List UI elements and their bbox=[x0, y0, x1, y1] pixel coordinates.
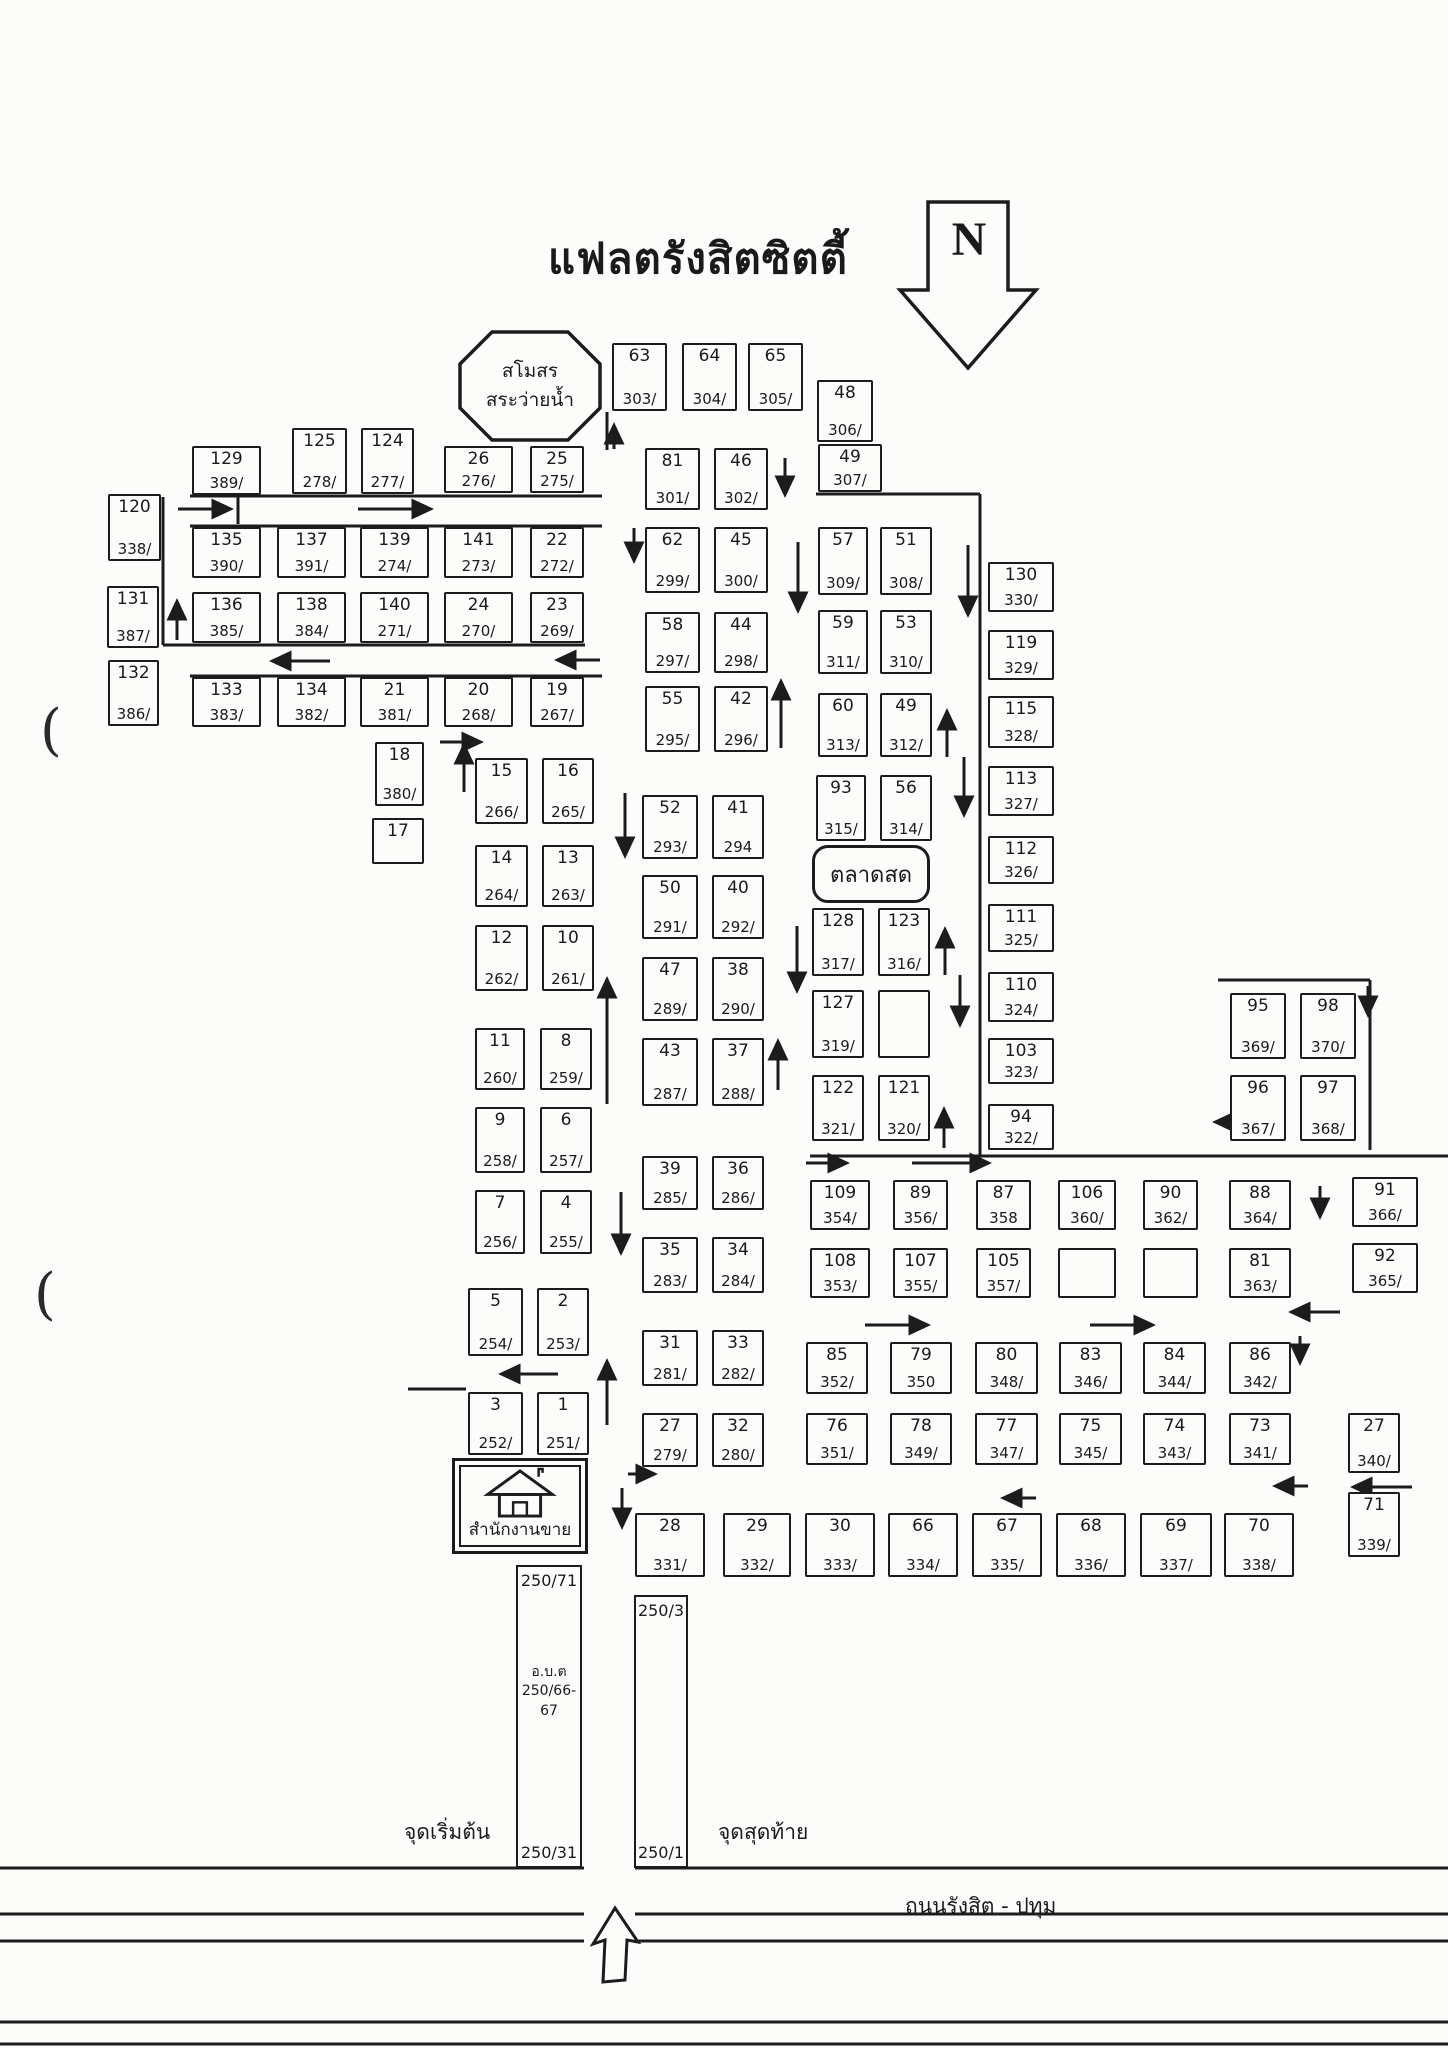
block-unit-number: 60 bbox=[832, 695, 854, 716]
block-address-number: 269/ bbox=[540, 623, 574, 642]
block-unit-number: 106 bbox=[1071, 1182, 1103, 1203]
block-46: 46302/ bbox=[714, 448, 768, 510]
block-address-number: 353/ bbox=[823, 1278, 857, 1297]
block-unit-number: 38 bbox=[727, 959, 749, 980]
block-38: 38290/ bbox=[712, 957, 764, 1021]
block-address-number: 389/ bbox=[210, 475, 244, 494]
block-unit-number: 80 bbox=[996, 1344, 1018, 1365]
block-address-number: 332/ bbox=[740, 1557, 774, 1576]
block-address-number: 362/ bbox=[1154, 1210, 1188, 1229]
block-address-number: 313/ bbox=[826, 737, 860, 756]
block-unit-number: 139 bbox=[378, 529, 410, 550]
block-unit-number: 91 bbox=[1374, 1179, 1396, 1200]
block-94: 94322/ bbox=[988, 1104, 1054, 1150]
block-129: 129389/ bbox=[192, 446, 261, 495]
block-unit-number: 31 bbox=[659, 1332, 681, 1353]
block-address-number: 347/ bbox=[990, 1445, 1024, 1464]
block-49: 49312/ bbox=[880, 693, 932, 757]
block-unit-number: 46 bbox=[730, 450, 752, 471]
block-unit-number: 136 bbox=[210, 594, 242, 615]
block-87: 87358 bbox=[976, 1180, 1031, 1230]
block-106: 106360/ bbox=[1058, 1180, 1116, 1230]
block-unit-number: 94 bbox=[1010, 1106, 1032, 1127]
block-unit-number: 128 bbox=[822, 910, 854, 931]
block-2: 2253/ bbox=[537, 1288, 589, 1356]
block-63: 63303/ bbox=[612, 343, 667, 411]
block-unit-number: 30 bbox=[829, 1515, 851, 1536]
block-address-number: 308/ bbox=[889, 575, 923, 594]
road-name-label: ถนนรังสิต - ปทุม bbox=[905, 1890, 1056, 1923]
block-address-number: 328/ bbox=[1004, 728, 1038, 747]
block-address-number: 366/ bbox=[1368, 1207, 1402, 1226]
block-address-number: 367/ bbox=[1241, 1121, 1275, 1140]
block-119: 119329/ bbox=[988, 630, 1054, 680]
block-unit-number: 84 bbox=[1164, 1344, 1186, 1365]
block-21: 21381/ bbox=[360, 677, 429, 727]
block-unit-number: 134 bbox=[295, 679, 327, 700]
block-unit-number: 48 bbox=[834, 382, 856, 403]
entrance-arrow bbox=[593, 1908, 638, 1982]
block-67: 67335/ bbox=[972, 1513, 1042, 1577]
block-unit-number: 20 bbox=[468, 679, 490, 700]
block-139: 139274/ bbox=[360, 527, 429, 578]
block-address-number: 307/ bbox=[833, 472, 867, 491]
block-address-number: 276/ bbox=[462, 473, 496, 492]
block-12: 12262/ bbox=[475, 925, 528, 991]
block-131: 131387/ bbox=[107, 586, 159, 648]
block-address-number: 293/ bbox=[653, 839, 687, 858]
block-76: 76351/ bbox=[806, 1413, 868, 1465]
block-unit-number: 1 bbox=[558, 1394, 569, 1415]
block-22: 22272/ bbox=[530, 527, 584, 578]
block-address-number: 280/ bbox=[721, 1447, 755, 1466]
block-unit-number: 74 bbox=[1164, 1415, 1186, 1436]
block-address-number: 268/ bbox=[462, 707, 496, 726]
block-address-number: 264/ bbox=[485, 887, 519, 906]
block-unit-number: 122 bbox=[822, 1077, 854, 1098]
block-unit-number: 18 bbox=[389, 744, 411, 765]
scan-artifact-mark: ( bbox=[40, 698, 62, 763]
block-unit-number: 65 bbox=[765, 345, 787, 366]
block-96: 96367/ bbox=[1230, 1075, 1286, 1141]
block-unit-number: 79 bbox=[910, 1344, 932, 1365]
block-unit-number: 58 bbox=[662, 614, 684, 635]
block-97: 97368/ bbox=[1300, 1075, 1356, 1141]
block-address-number: 383/ bbox=[210, 707, 244, 726]
block-address-number: 304/ bbox=[693, 391, 727, 410]
block-1: 1251/ bbox=[537, 1392, 589, 1455]
block-unit-number: 86 bbox=[1249, 1344, 1271, 1365]
block-address-number: 301/ bbox=[656, 490, 690, 509]
block-80: 80348/ bbox=[975, 1342, 1038, 1394]
block-unit-number: 8 bbox=[561, 1030, 572, 1051]
block-unit-number: 110 bbox=[1005, 974, 1037, 995]
block-4: 4255/ bbox=[540, 1190, 592, 1254]
block-address-number: 271/ bbox=[378, 623, 412, 642]
block-108: 108353/ bbox=[810, 1248, 870, 1298]
block-address-number: 339/ bbox=[1357, 1537, 1391, 1556]
block-address-number: 356/ bbox=[904, 1210, 938, 1229]
block-78: 78349/ bbox=[890, 1413, 952, 1465]
block-address-number: 290/ bbox=[721, 1001, 755, 1020]
block-address-number: 278/ bbox=[303, 474, 337, 493]
block-unit-number: 19 bbox=[546, 679, 568, 700]
block-unit-number: 68 bbox=[1080, 1515, 1102, 1536]
block-122: 122321/ bbox=[812, 1075, 864, 1141]
block-unit-number: 55 bbox=[662, 688, 684, 709]
block-31: 31281/ bbox=[642, 1330, 698, 1386]
block-address-number: 384/ bbox=[295, 623, 329, 642]
block-8: 8259/ bbox=[540, 1028, 592, 1090]
block-unit-number: 108 bbox=[824, 1250, 856, 1271]
block-unit-number: 59 bbox=[832, 612, 854, 633]
block-52: 52293/ bbox=[642, 795, 698, 859]
block-89: 89356/ bbox=[893, 1180, 948, 1230]
block-address-number: 387/ bbox=[116, 628, 150, 647]
block-address-number: 337/ bbox=[1159, 1557, 1193, 1576]
block-47: 47289/ bbox=[642, 957, 698, 1021]
block-address-number: 385/ bbox=[210, 623, 244, 642]
block-address-number: 316/ bbox=[887, 956, 921, 975]
block-unit-number: 96 bbox=[1247, 1077, 1269, 1098]
block-5: 5254/ bbox=[468, 1288, 523, 1356]
block-unit-number: 14 bbox=[491, 847, 513, 868]
block-unit-number: 2 bbox=[558, 1290, 569, 1311]
block-unit-number: 81 bbox=[1249, 1250, 1271, 1271]
block-unit-number: 95 bbox=[1247, 995, 1269, 1016]
block-address-number: 297/ bbox=[656, 653, 690, 672]
block-unit-number: 90 bbox=[1160, 1182, 1182, 1203]
block-81: 81363/ bbox=[1229, 1248, 1291, 1298]
block-121: 121320/ bbox=[878, 1075, 930, 1141]
block-address-number: 310/ bbox=[889, 654, 923, 673]
sales-office-label: สำนักงานขาย bbox=[469, 1516, 571, 1545]
block-address-number: 323/ bbox=[1004, 1064, 1038, 1083]
block-127: 127319/ bbox=[812, 990, 864, 1058]
block-68: 68336/ bbox=[1056, 1513, 1126, 1577]
block-address-number: 266/ bbox=[485, 804, 519, 823]
block-unit-number: 120 bbox=[118, 496, 150, 517]
block-unit-number: 123 bbox=[888, 910, 920, 931]
block-unit-number: 131 bbox=[117, 588, 149, 609]
block-address-number: 351/ bbox=[820, 1445, 854, 1464]
block-address-number: 368/ bbox=[1311, 1121, 1345, 1140]
block-address-number: 259/ bbox=[549, 1070, 583, 1089]
block-address-number: 327/ bbox=[1004, 796, 1038, 815]
block-51: 51308/ bbox=[880, 527, 932, 595]
block-30: 30333/ bbox=[805, 1513, 875, 1577]
block-unit-number: 35 bbox=[659, 1239, 681, 1260]
block-unit-number: 77 bbox=[996, 1415, 1018, 1436]
block-123: 123316/ bbox=[878, 908, 930, 976]
block-unit-number: 42 bbox=[730, 688, 752, 709]
block-70: 70338/ bbox=[1224, 1513, 1294, 1577]
block-unit-number: 50 bbox=[659, 877, 681, 898]
block-unit-number: 4 bbox=[561, 1192, 572, 1213]
block-unit-number: 52 bbox=[659, 797, 681, 818]
block-address-number: 289/ bbox=[653, 1001, 687, 1020]
block-unit-number: 78 bbox=[910, 1415, 932, 1436]
block-address-number: 295/ bbox=[656, 732, 690, 751]
block-unit-number: 89 bbox=[910, 1182, 932, 1203]
block-103: 103323/ bbox=[988, 1038, 1054, 1084]
block-unit-number: 27 bbox=[1363, 1415, 1385, 1436]
block-address-number: 267/ bbox=[540, 707, 574, 726]
clubhouse-label: สโมสร สระว่ายน้ำ bbox=[458, 330, 602, 442]
block-unit-number: 64 bbox=[699, 345, 721, 366]
lot-strip-left: 250/71 อ.บ.ต 250/66-67 250/31 bbox=[516, 1565, 582, 1868]
block-11: 11260/ bbox=[475, 1028, 525, 1090]
block-79: 79350 bbox=[890, 1342, 952, 1394]
block-address-number: 312/ bbox=[889, 737, 923, 756]
north-label: N bbox=[940, 212, 998, 267]
block-empty bbox=[878, 990, 930, 1058]
block-140: 140271/ bbox=[360, 592, 429, 643]
block-unit-number: 93 bbox=[830, 777, 852, 798]
block-unit-number: 39 bbox=[659, 1158, 681, 1179]
block-address-number: 285/ bbox=[653, 1190, 687, 1209]
block-23: 23269/ bbox=[530, 592, 584, 643]
block-137: 137391/ bbox=[277, 527, 346, 578]
block-address-number: 300/ bbox=[724, 573, 758, 592]
block-address-number: 255/ bbox=[549, 1234, 583, 1253]
block-unit-number: 137 bbox=[295, 529, 327, 550]
block-unit-number: 135 bbox=[210, 529, 242, 550]
block-unit-number: 12 bbox=[491, 927, 513, 948]
block-112: 112326/ bbox=[988, 836, 1054, 884]
block-77: 77347/ bbox=[975, 1413, 1038, 1465]
block-unit-number: 5 bbox=[490, 1290, 501, 1311]
block-address-number: 333/ bbox=[823, 1557, 857, 1576]
block-unit-number: 37 bbox=[727, 1040, 749, 1061]
block-address-number: 360/ bbox=[1070, 1210, 1104, 1229]
block-address-number: 363/ bbox=[1243, 1278, 1277, 1297]
block-address-number: 370/ bbox=[1311, 1039, 1345, 1058]
block-111: 111325/ bbox=[988, 904, 1054, 952]
block-unit-number: 41 bbox=[727, 797, 749, 818]
block-address-number: 346/ bbox=[1074, 1374, 1108, 1393]
block-address-number: 303/ bbox=[623, 391, 657, 410]
market-label: ตลาดสด bbox=[830, 857, 912, 892]
block-address-number: 306/ bbox=[828, 422, 862, 441]
block-unit-number: 26 bbox=[468, 448, 490, 469]
block-address-number: 324/ bbox=[1004, 1002, 1038, 1021]
block-56: 56314/ bbox=[880, 775, 932, 841]
block-address-number: 315/ bbox=[824, 821, 858, 840]
block-unit-number: 63 bbox=[629, 345, 651, 366]
block-69: 69337/ bbox=[1140, 1513, 1212, 1577]
block-address-number: 341/ bbox=[1243, 1445, 1277, 1464]
block-unit-number: 45 bbox=[730, 529, 752, 550]
block-unit-number: 28 bbox=[659, 1515, 681, 1536]
block-unit-number: 47 bbox=[659, 959, 681, 980]
block-unit-number: 36 bbox=[727, 1158, 749, 1179]
block-53: 53310/ bbox=[880, 610, 932, 674]
block-unit-number: 10 bbox=[557, 927, 579, 948]
block-88: 88364/ bbox=[1229, 1180, 1291, 1230]
block-92: 92365/ bbox=[1352, 1243, 1418, 1293]
block-105: 105357/ bbox=[976, 1248, 1031, 1298]
strip-right-top-label: 250/3 bbox=[636, 1601, 686, 1620]
block-132: 132386/ bbox=[108, 660, 159, 726]
block-empty bbox=[1143, 1248, 1198, 1298]
block-address-number: 251/ bbox=[546, 1435, 580, 1454]
block-address-number: 391/ bbox=[295, 558, 329, 577]
block-19: 19267/ bbox=[530, 677, 584, 727]
block-address-number: 279/ bbox=[653, 1447, 687, 1466]
block-address-number: 287/ bbox=[653, 1086, 687, 1105]
block-86: 86342/ bbox=[1229, 1342, 1291, 1394]
block-address-number: 380/ bbox=[383, 786, 417, 805]
site-map: แฟลตรังสิตซิตตี้ N สโมสร สระว่ายน้ำ ตลาด… bbox=[0, 0, 1448, 2048]
block-62: 62299/ bbox=[645, 527, 700, 593]
block-134: 134382/ bbox=[277, 677, 346, 727]
strip-left-mid-label: อ.บ.ต 250/66-67 bbox=[518, 1663, 580, 1722]
block-32: 32280/ bbox=[712, 1413, 764, 1467]
block-98: 98370/ bbox=[1300, 993, 1356, 1059]
block-unit-number: 53 bbox=[895, 612, 917, 633]
house-icon bbox=[477, 1467, 563, 1518]
block-57: 57309/ bbox=[818, 527, 868, 595]
block-address-number: 270/ bbox=[462, 623, 496, 642]
block-45: 45300/ bbox=[714, 527, 768, 593]
block-37: 37288/ bbox=[712, 1038, 764, 1106]
block-71: 71339/ bbox=[1348, 1492, 1400, 1557]
block-unit-number: 98 bbox=[1317, 995, 1339, 1016]
sales-office: สำนักงานขาย bbox=[452, 1458, 588, 1554]
block-address-number: 390/ bbox=[210, 558, 244, 577]
block-address-number: 326/ bbox=[1004, 864, 1038, 883]
block-unit-number: 21 bbox=[384, 679, 406, 700]
block-17: 17 bbox=[372, 818, 424, 864]
block-address-number: 321/ bbox=[821, 1121, 855, 1140]
block-address-number: 294 bbox=[724, 839, 753, 858]
block-address-number: 369/ bbox=[1241, 1039, 1275, 1058]
block-unit-number: 115 bbox=[1005, 698, 1037, 719]
block-unit-number: 124 bbox=[371, 430, 403, 451]
block-35: 35283/ bbox=[642, 1237, 698, 1293]
block-address-number: 342/ bbox=[1243, 1374, 1277, 1393]
block-36: 36286/ bbox=[712, 1156, 764, 1210]
block-address-number: 355/ bbox=[904, 1278, 938, 1297]
block-unit-number: 141 bbox=[462, 529, 494, 550]
block-unit-number: 16 bbox=[557, 760, 579, 781]
block-unit-number: 49 bbox=[839, 446, 861, 467]
block-33: 33282/ bbox=[712, 1330, 764, 1386]
block-43: 43287/ bbox=[642, 1038, 698, 1106]
block-address-number: 317/ bbox=[821, 956, 855, 975]
block-138: 138384/ bbox=[277, 592, 346, 643]
block-128: 128317/ bbox=[812, 908, 864, 976]
block-address-number: 284/ bbox=[721, 1273, 755, 1292]
block-90: 90362/ bbox=[1143, 1180, 1198, 1230]
block-address-number: 309/ bbox=[826, 575, 860, 594]
block-unit-number: 56 bbox=[895, 777, 917, 798]
block-7: 7256/ bbox=[475, 1190, 525, 1254]
block-91: 91366/ bbox=[1352, 1177, 1418, 1227]
block-address-number: 292/ bbox=[721, 919, 755, 938]
block-address-number: 331/ bbox=[653, 1557, 687, 1576]
block-24: 24270/ bbox=[444, 592, 513, 643]
block-address-number: 319/ bbox=[821, 1038, 855, 1057]
lot-strip-right: 250/3 250/1 bbox=[634, 1595, 688, 1868]
block-address-number: 288/ bbox=[721, 1086, 755, 1105]
clubhouse-pool: สโมสร สระว่ายน้ำ bbox=[458, 330, 602, 442]
block-address-number: 274/ bbox=[378, 558, 412, 577]
block-3: 3252/ bbox=[468, 1392, 523, 1455]
block-address-number: 338/ bbox=[118, 541, 152, 560]
block-unit-number: 23 bbox=[546, 594, 568, 615]
block-address-number: 299/ bbox=[656, 573, 690, 592]
block-address-number: 381/ bbox=[378, 707, 412, 726]
block-unit-number: 62 bbox=[662, 529, 684, 550]
block-unit-number: 57 bbox=[832, 529, 854, 550]
block-unit-number: 15 bbox=[491, 760, 513, 781]
block-address-number: 262/ bbox=[485, 971, 519, 990]
block-29: 29332/ bbox=[723, 1513, 791, 1577]
block-unit-number: 97 bbox=[1317, 1077, 1339, 1098]
block-address-number: 365/ bbox=[1368, 1273, 1402, 1292]
block-15: 15266/ bbox=[475, 758, 528, 824]
block-unit-number: 7 bbox=[495, 1192, 506, 1213]
block-unit-number: 73 bbox=[1249, 1415, 1271, 1436]
block-address-number: 291/ bbox=[653, 919, 687, 938]
block-109: 109354/ bbox=[810, 1180, 870, 1230]
block-73: 73341/ bbox=[1229, 1413, 1291, 1465]
block-address-number: 261/ bbox=[551, 971, 585, 990]
block-110: 110324/ bbox=[988, 972, 1054, 1022]
block-unit-number: 113 bbox=[1005, 768, 1037, 789]
block-unit-number: 130 bbox=[1005, 564, 1037, 585]
block-unit-number: 87 bbox=[993, 1182, 1015, 1203]
block-unit-number: 69 bbox=[1165, 1515, 1187, 1536]
block-unit-number: 40 bbox=[727, 877, 749, 898]
block-address-number: 325/ bbox=[1004, 932, 1038, 951]
block-unit-number: 66 bbox=[912, 1515, 934, 1536]
block-unit-number: 121 bbox=[888, 1077, 920, 1098]
block-address-number: 273/ bbox=[462, 558, 496, 577]
block-unit-number: 103 bbox=[1005, 1040, 1037, 1061]
block-address-number: 265/ bbox=[551, 804, 585, 823]
block-13: 13263/ bbox=[542, 845, 594, 907]
block-unit-number: 43 bbox=[659, 1040, 681, 1061]
block-address-number: 343/ bbox=[1158, 1445, 1192, 1464]
block-133: 133383/ bbox=[192, 677, 261, 727]
block-27: 27340/ bbox=[1348, 1413, 1400, 1473]
block-address-number: 305/ bbox=[759, 391, 793, 410]
block-50: 50291/ bbox=[642, 875, 698, 939]
block-93: 93315/ bbox=[816, 775, 866, 841]
block-unit-number: 119 bbox=[1005, 632, 1037, 653]
block-unit-number: 17 bbox=[387, 820, 409, 841]
block-address-number: 254/ bbox=[479, 1336, 513, 1355]
block-address-number: 260/ bbox=[483, 1070, 517, 1089]
block-address-number: 282/ bbox=[721, 1366, 755, 1385]
block-125: 125278/ bbox=[292, 428, 347, 494]
block-unit-number: 70 bbox=[1248, 1515, 1270, 1536]
block-136: 136385/ bbox=[192, 592, 261, 643]
block-address-number: 340/ bbox=[1357, 1453, 1391, 1472]
block-address-number: 344/ bbox=[1158, 1374, 1192, 1393]
block-address-number: 257/ bbox=[549, 1153, 583, 1172]
block-address-number: 320/ bbox=[887, 1121, 921, 1140]
block-unit-number: 127 bbox=[822, 992, 854, 1013]
block-unit-number: 25 bbox=[546, 448, 568, 469]
block-64: 64304/ bbox=[682, 343, 737, 411]
block-20: 20268/ bbox=[444, 677, 513, 727]
block-124: 124277/ bbox=[361, 428, 414, 494]
block-address-number: 322/ bbox=[1004, 1130, 1038, 1149]
